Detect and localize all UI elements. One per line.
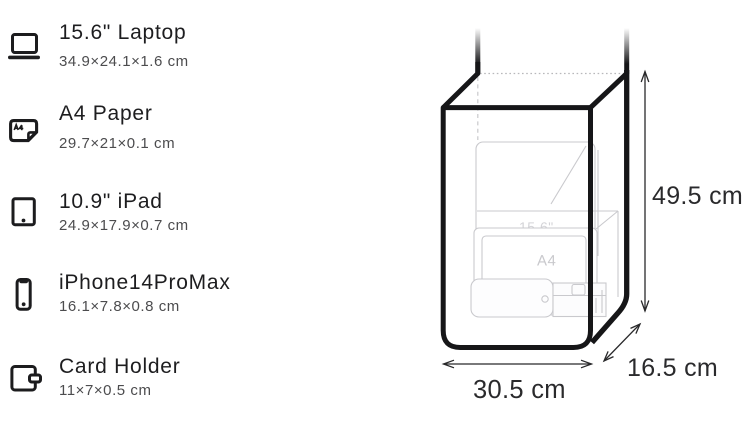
svg-text:A4: A4 bbox=[537, 253, 556, 270]
